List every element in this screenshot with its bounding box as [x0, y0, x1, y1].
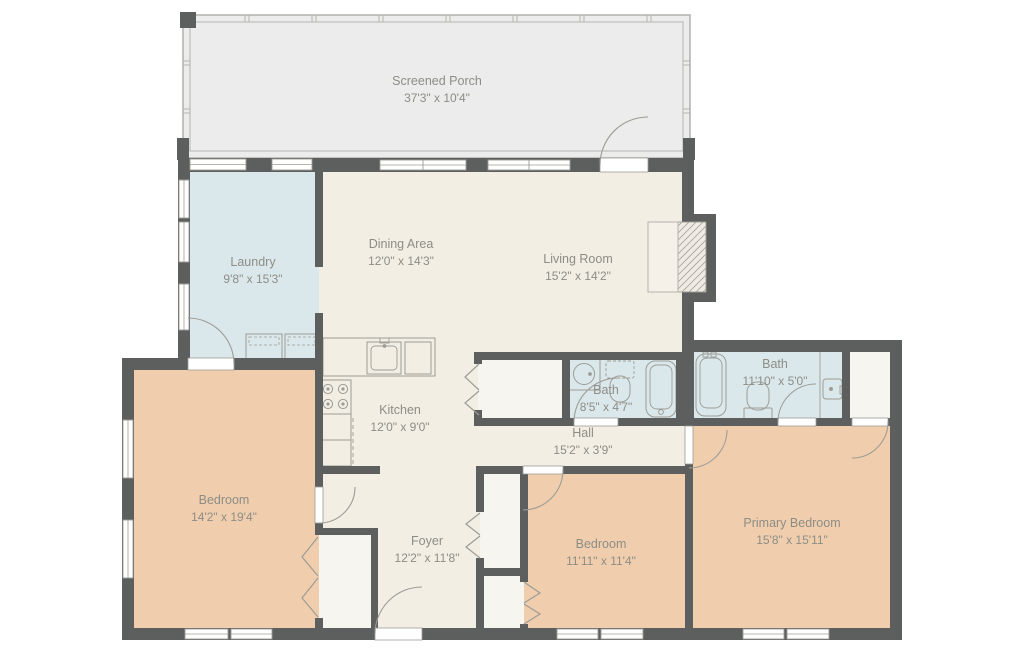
bedroom-left-closet-floor: [319, 531, 375, 630]
door-leaf: [523, 466, 563, 474]
primary-bedroom-floor: [689, 422, 894, 632]
door-leaf: [188, 358, 234, 370]
wall: [474, 352, 694, 360]
door-leaf: [375, 628, 422, 640]
door-leaf: [778, 418, 816, 426]
wall: [890, 340, 902, 640]
porch-post: [177, 138, 189, 160]
wall: [315, 618, 323, 640]
wall: [315, 158, 323, 267]
wall: [842, 352, 850, 426]
bedroom-middle-floor: [524, 470, 689, 632]
floorplan-svg: [0, 0, 1024, 660]
door-leaf: [574, 418, 618, 426]
pantry-closet-floor: [478, 356, 566, 422]
foyer-closet-floor: [480, 470, 524, 572]
porch-post: [180, 12, 196, 28]
door-leaf: [685, 426, 693, 464]
wall: [323, 528, 378, 535]
wall: [315, 523, 323, 535]
closet-top-right-floor: [846, 348, 894, 422]
wall: [474, 352, 482, 364]
wall: [315, 313, 323, 370]
wall: [476, 576, 484, 630]
wall: [520, 466, 528, 576]
door-leaf: [600, 158, 648, 172]
laundry-floor: [186, 166, 319, 362]
wall: [694, 340, 902, 352]
wall: [122, 358, 134, 640]
wall: [562, 352, 570, 426]
wall: [484, 466, 685, 474]
bedroom-middle-closet-floor: [480, 572, 524, 632]
door-leaf: [315, 487, 323, 523]
floorplan-image: Screened Porch 37'3" x 10'4" Laundry 9'8…: [0, 0, 1024, 660]
bedroom-left-floor: [128, 364, 319, 632]
wall: [371, 535, 378, 628]
wall: [520, 576, 528, 582]
porch-post: [683, 138, 695, 160]
wall: [520, 624, 528, 630]
screened-porch-floor: [183, 15, 690, 158]
fireplace-hearth: [648, 222, 678, 292]
wall: [676, 352, 694, 426]
wall: [315, 466, 380, 474]
wall: [474, 418, 902, 426]
wall: [476, 466, 484, 512]
door-leaf: [852, 418, 888, 426]
